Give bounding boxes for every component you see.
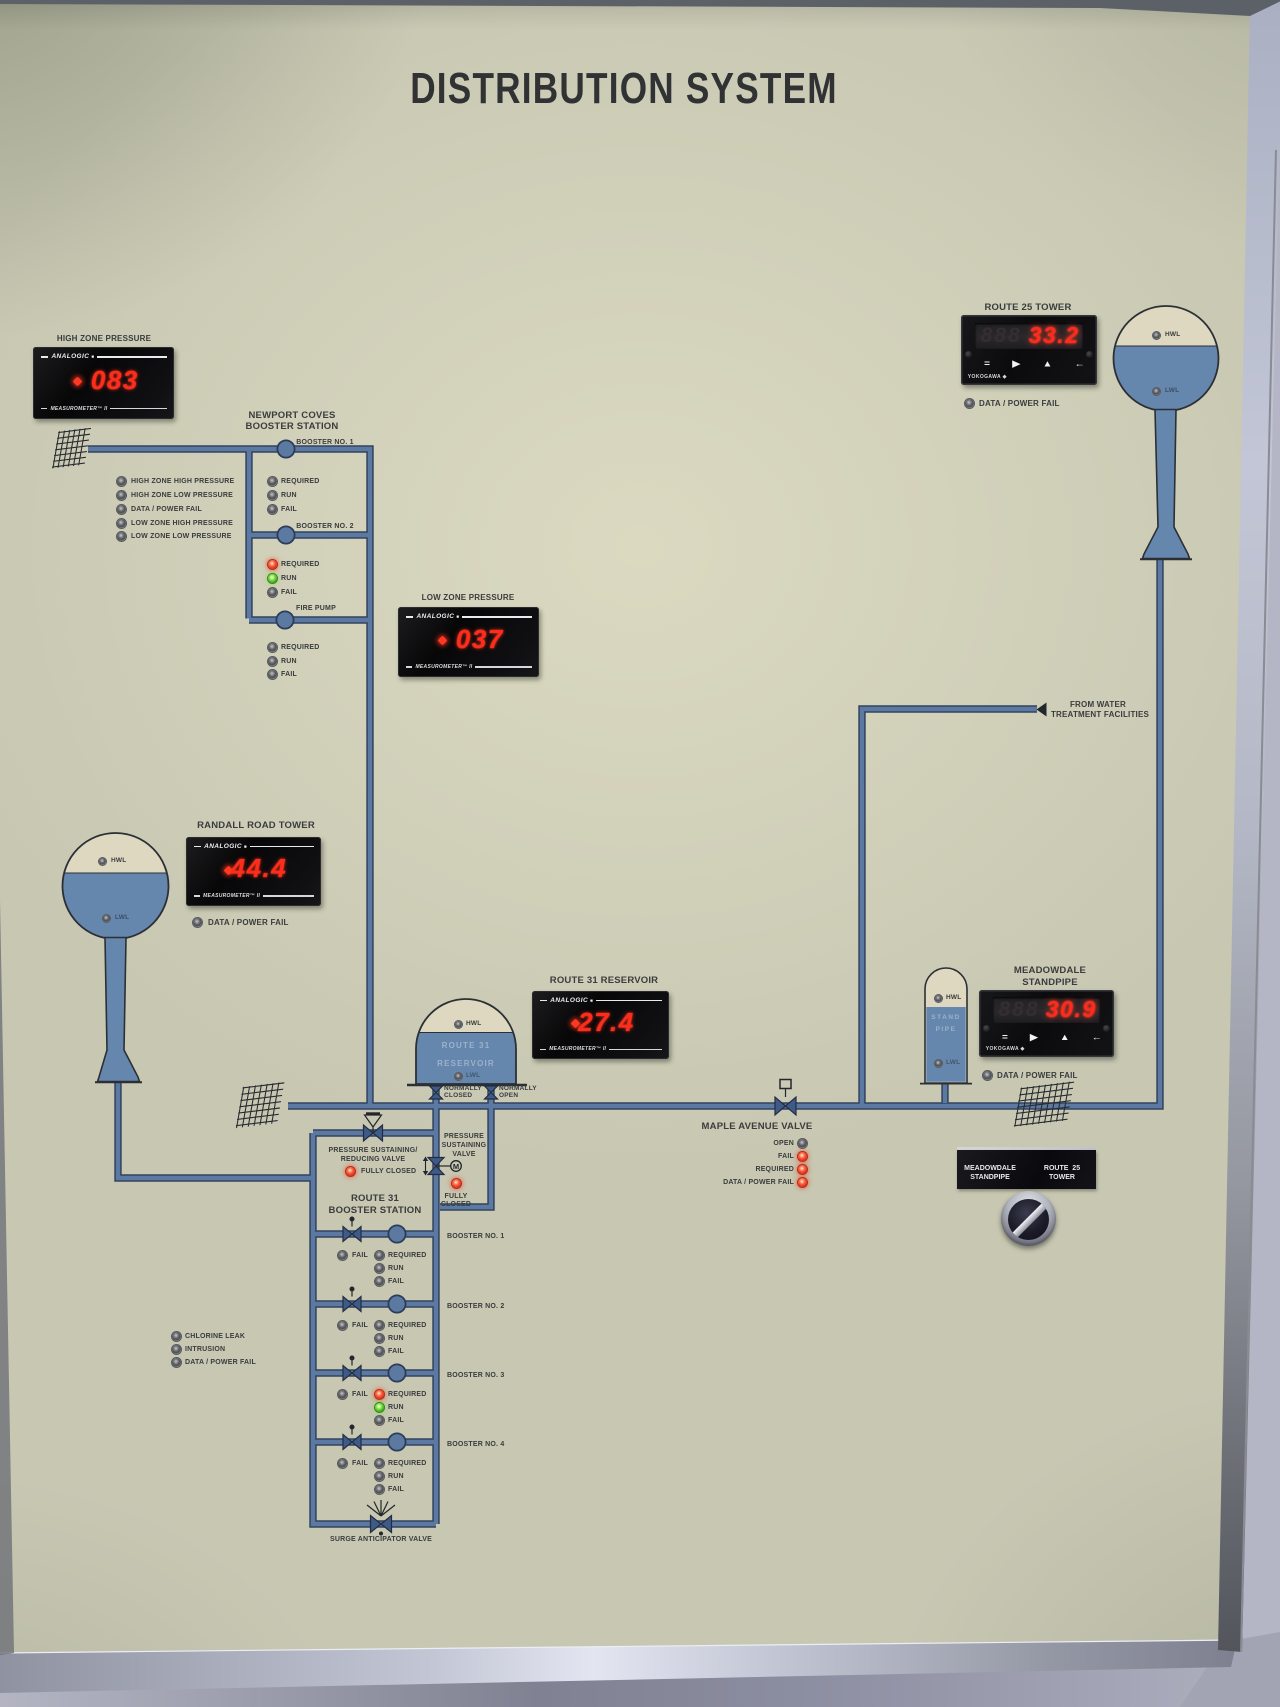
svg-text:M: M [453, 1162, 459, 1171]
